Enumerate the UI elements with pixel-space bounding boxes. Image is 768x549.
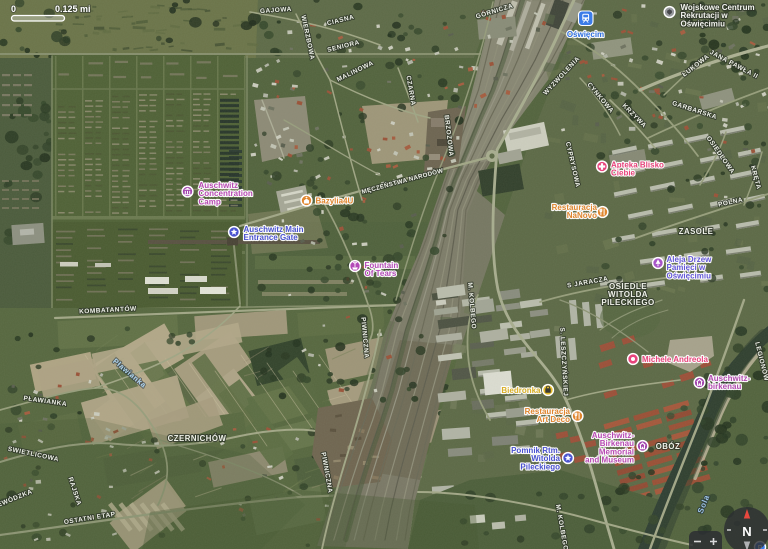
svg-text:N: N xyxy=(742,524,751,539)
svg-text:Oświęcim: Oświęcim xyxy=(567,30,604,39)
svg-text:0: 0 xyxy=(11,4,16,14)
svg-text:Art Deco: Art Deco xyxy=(537,415,570,424)
svg-text:Biedronka: Biedronka xyxy=(501,386,541,395)
svg-text:Pileckiego: Pileckiego xyxy=(520,462,560,471)
svg-text:ZASOLE: ZASOLE xyxy=(679,227,714,236)
svg-text:birkenau: birkenau xyxy=(708,382,741,391)
svg-text:Entrance Gate: Entrance Gate xyxy=(244,233,299,242)
svg-text:OBÓZ: OBÓZ xyxy=(656,442,681,451)
svg-text:PILECKIEGO: PILECKIEGO xyxy=(601,298,654,307)
svg-text:Camp: Camp xyxy=(199,197,221,206)
svg-text:0.125 mi: 0.125 mi xyxy=(55,4,91,14)
svg-text:Oświęcimiu: Oświęcimiu xyxy=(667,271,712,280)
svg-text:NaNovo: NaNovo xyxy=(567,211,597,220)
svg-text:CZERNICHÓW: CZERNICHÓW xyxy=(168,434,227,443)
svg-text:and Museum: and Museum xyxy=(585,456,634,465)
svg-text:Bazylia4U: Bazylia4U xyxy=(316,197,354,206)
svg-text:Oświęcimiu: Oświęcimiu xyxy=(681,19,726,28)
svg-text:Michele Andreola: Michele Andreola xyxy=(642,355,708,364)
svg-text:Ciebie: Ciebie xyxy=(611,169,636,178)
svg-text:Of Tears: Of Tears xyxy=(365,269,397,278)
